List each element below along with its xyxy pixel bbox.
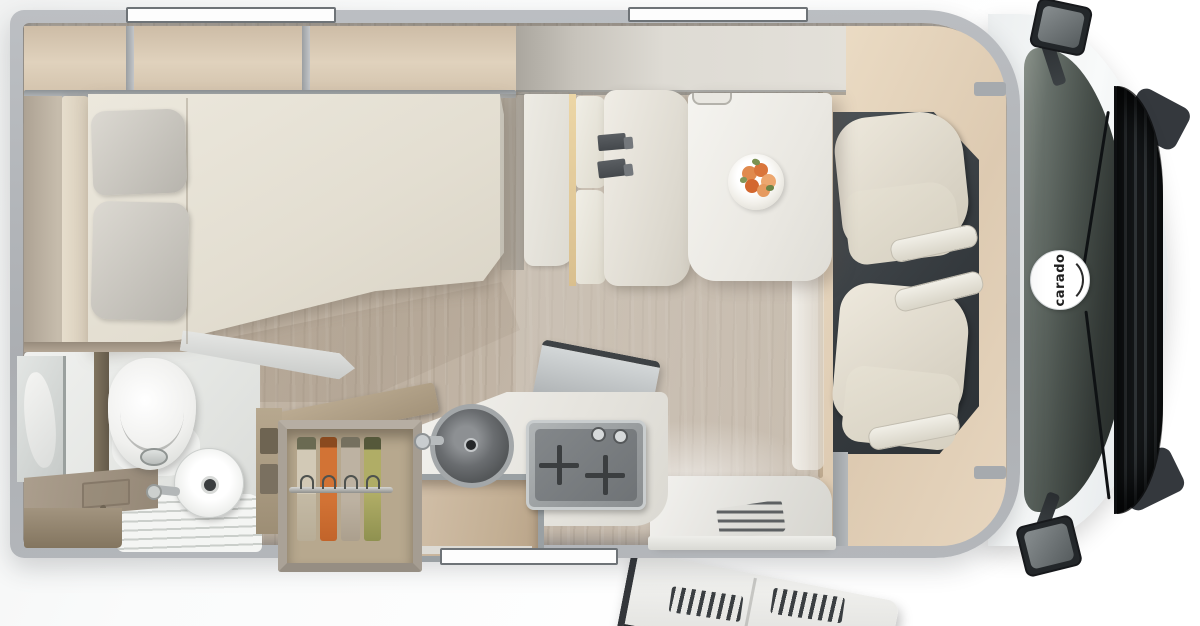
fruit-plate <box>728 154 784 210</box>
mirror-reflection <box>20 371 60 470</box>
sink-drain-icon <box>464 438 478 452</box>
burner-icon <box>585 455 625 495</box>
hanger-hook-icon <box>366 475 380 489</box>
bench-shadow <box>500 94 524 270</box>
entry-door-open <box>616 550 900 626</box>
locker-divider <box>126 26 134 92</box>
hob-knob-icon <box>591 427 606 442</box>
pillow <box>90 201 189 321</box>
wall-stub <box>974 82 1006 96</box>
vanity-sink <box>82 479 130 509</box>
wall-window <box>440 548 618 565</box>
wall-stub <box>974 466 1006 479</box>
partition-post <box>94 352 109 480</box>
overhead-locker <box>310 26 516 92</box>
door-panel-line <box>742 578 757 626</box>
hanger-hook-icon <box>300 475 314 489</box>
table-bracket <box>692 93 732 105</box>
wall-window <box>628 7 808 22</box>
door-frame <box>833 452 848 546</box>
bench-backrest <box>576 190 606 284</box>
faucet-base-icon <box>146 484 162 500</box>
bedside-shelf <box>24 96 62 346</box>
hob-knob-icon <box>613 429 628 444</box>
door-vent-icon <box>770 588 845 624</box>
bench-wood-trim <box>569 94 576 286</box>
hanger-hook-icon <box>322 475 336 489</box>
bed-base-edge <box>24 342 186 352</box>
bathroom-mirror <box>17 356 66 482</box>
dinette-bench <box>604 90 690 286</box>
overhead-locker-dinette <box>516 26 846 92</box>
wardrobe-with-clothes <box>278 420 422 572</box>
pillow <box>91 108 188 195</box>
vanity-cabinet <box>24 508 122 548</box>
overhead-locker <box>24 26 126 92</box>
motorhome-floorplan: carado <box>0 0 1200 626</box>
seatbelt-icon <box>597 133 626 151</box>
door-vent-icon <box>669 586 744 622</box>
overhead-locker <box>134 26 302 92</box>
carado-logo-badge: carado <box>1030 250 1090 310</box>
front-grille <box>1114 86 1163 514</box>
kitchen-sink <box>430 404 514 488</box>
hanger-hook-icon <box>344 475 358 489</box>
two-burner-hob <box>526 420 646 510</box>
faucet-base-icon <box>414 433 431 450</box>
shelf-cubby <box>260 464 278 494</box>
flush-button-icon <box>140 448 168 466</box>
brand-logo-text: carado <box>1031 251 1089 309</box>
headboard <box>62 96 90 346</box>
washbasin <box>174 448 244 518</box>
wall-window <box>126 7 336 23</box>
burner-icon <box>539 445 579 485</box>
leaf-icon <box>766 185 774 191</box>
mirror-glass <box>1023 522 1075 570</box>
locker-divider <box>302 26 310 92</box>
mirror-glass <box>1037 5 1086 49</box>
seatbelt-icon <box>597 158 627 178</box>
door-sill <box>648 536 836 550</box>
seatbelt-buckle-icon <box>623 163 633 176</box>
seatbelt-buckle-icon <box>623 137 633 150</box>
leaf-icon <box>740 177 747 183</box>
toilet-lid-seam <box>120 372 184 452</box>
shelf-cubby <box>260 428 278 454</box>
drain-icon <box>201 476 219 494</box>
